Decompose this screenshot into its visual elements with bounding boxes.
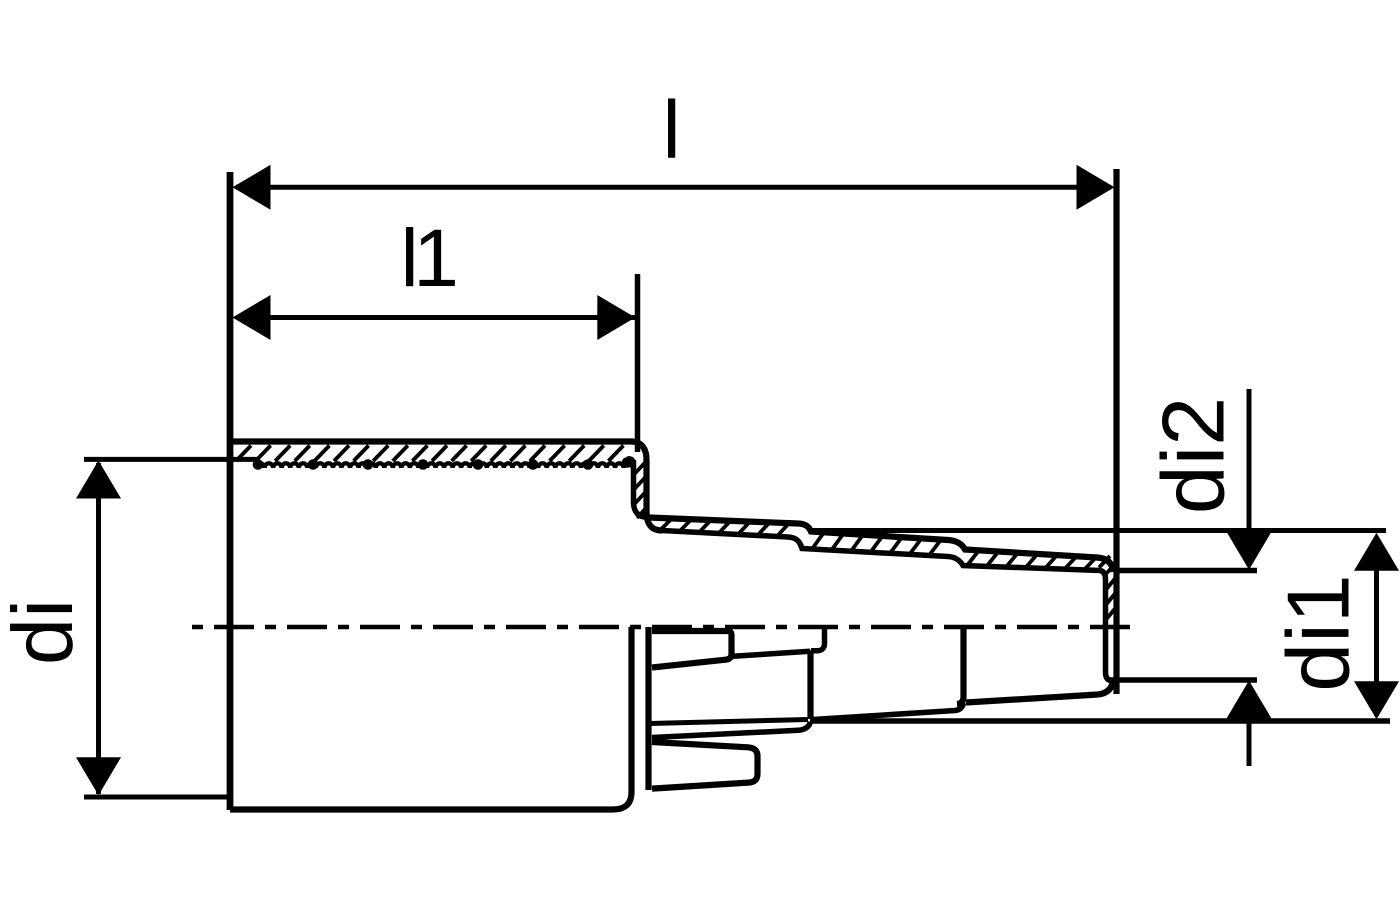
svg-text:di2: di2	[1144, 397, 1243, 514]
svg-text:l: l	[663, 85, 681, 176]
svg-text:l1: l1	[401, 213, 456, 304]
svg-text:di1: di1	[1269, 574, 1368, 691]
svg-text:di: di	[0, 599, 91, 665]
